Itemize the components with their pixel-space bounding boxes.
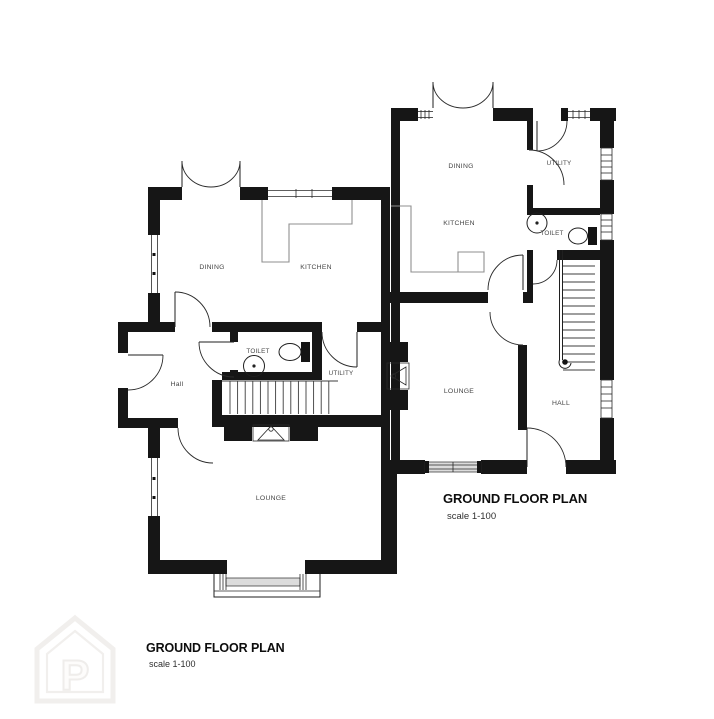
right-house-lounge-window: [425, 461, 481, 473]
right-house-side-window-utility: [601, 148, 612, 180]
watermark-logo: P: [37, 618, 113, 701]
left-room-label-toilet: TOILET: [246, 348, 269, 355]
house-left-plan: DINING KITCHEN TOILET UTILITY Hall LOUNG…: [118, 161, 397, 597]
left-house-staircase: [222, 381, 338, 414]
right-room-label-dining: DINING: [448, 163, 473, 170]
left-house-french-doors: [182, 161, 240, 187]
floor-plan-sheet: P: [0, 0, 714, 719]
party-wall-seam: [390, 187, 391, 474]
right-room-label-hall: HALL: [552, 400, 570, 407]
house-right-plan: DINING KITCHEN UTILITY TOILET LOUNGE HAL…: [387, 82, 616, 474]
toilet-cistern-icon: [301, 342, 310, 362]
right-plan-scale: scale 1-100: [447, 511, 496, 522]
left-room-label-hall: Hall: [171, 381, 184, 388]
left-house-lounge-door: [178, 428, 213, 463]
left-house-fireplace: [224, 425, 318, 441]
right-house-lounge-door: [490, 312, 523, 345]
right-house-utility-internal-door: [529, 150, 564, 185]
right-plan-title: GROUND FLOOR PLAN: [443, 491, 587, 506]
left-room-label-dining: DINING: [199, 264, 224, 271]
toilet-pan-icon: [279, 344, 301, 361]
right-room-label-kitchen: KITCHEN: [443, 220, 475, 227]
left-plan-title: GROUND FLOOR PLAN: [146, 641, 285, 655]
house-left-walls: [118, 187, 397, 574]
left-house-entry-door: [128, 355, 163, 390]
watermark-letter: P: [61, 652, 90, 700]
right-house-toilet-door: [533, 260, 557, 284]
left-plan-title-block: GROUND FLOOR PLAN scale 1-100: [146, 641, 285, 669]
fireplace-icon: [258, 426, 284, 440]
house-right-walls: [387, 108, 616, 474]
left-plan-scale: scale 1-100: [149, 659, 196, 669]
left-room-label-utility: UTILITY: [329, 370, 354, 377]
left-house-top-window: [268, 189, 332, 198]
right-house-top-utility-window: [568, 110, 590, 119]
left-house-side-window-lounge: [150, 458, 159, 516]
right-house-front-door: [527, 428, 566, 467]
left-house-bay-window: [214, 574, 320, 597]
right-plan-title-block: GROUND FLOOR PLAN scale 1-100: [443, 491, 587, 522]
right-house-toilet-fixtures: [527, 213, 597, 245]
right-house-kitchen-door: [488, 255, 523, 290]
left-house-kitchen-counter: [262, 200, 352, 262]
floor-plan-drawing: P: [0, 0, 714, 719]
right-house-side-window-toilet: [601, 214, 612, 240]
right-house-utility-external-door: [537, 121, 567, 151]
right-house-french-doors: [433, 82, 493, 108]
left-house-dining-door: [175, 292, 210, 327]
right-room-label-lounge: LOUNGE: [444, 388, 474, 395]
left-house-side-window-upper: [150, 235, 159, 293]
stair-newel-icon: [562, 359, 568, 365]
toilet-pan-icon: [569, 228, 588, 244]
right-house-kitchen-counter: [391, 206, 484, 272]
toilet-cistern-icon: [588, 227, 597, 245]
right-room-label-toilet: TOILET: [540, 230, 563, 237]
left-house-utility-door: [322, 332, 357, 367]
right-room-label-utility: UTILITY: [547, 160, 572, 167]
left-house-toilet-door: [199, 342, 234, 377]
right-house-staircase: [559, 250, 595, 370]
left-room-label-lounge: LOUNGE: [256, 495, 286, 502]
right-house-side-window-hall: [601, 380, 612, 418]
left-room-label-kitchen: KITCHEN: [300, 264, 332, 271]
right-house-sidelight-window: [418, 110, 433, 119]
